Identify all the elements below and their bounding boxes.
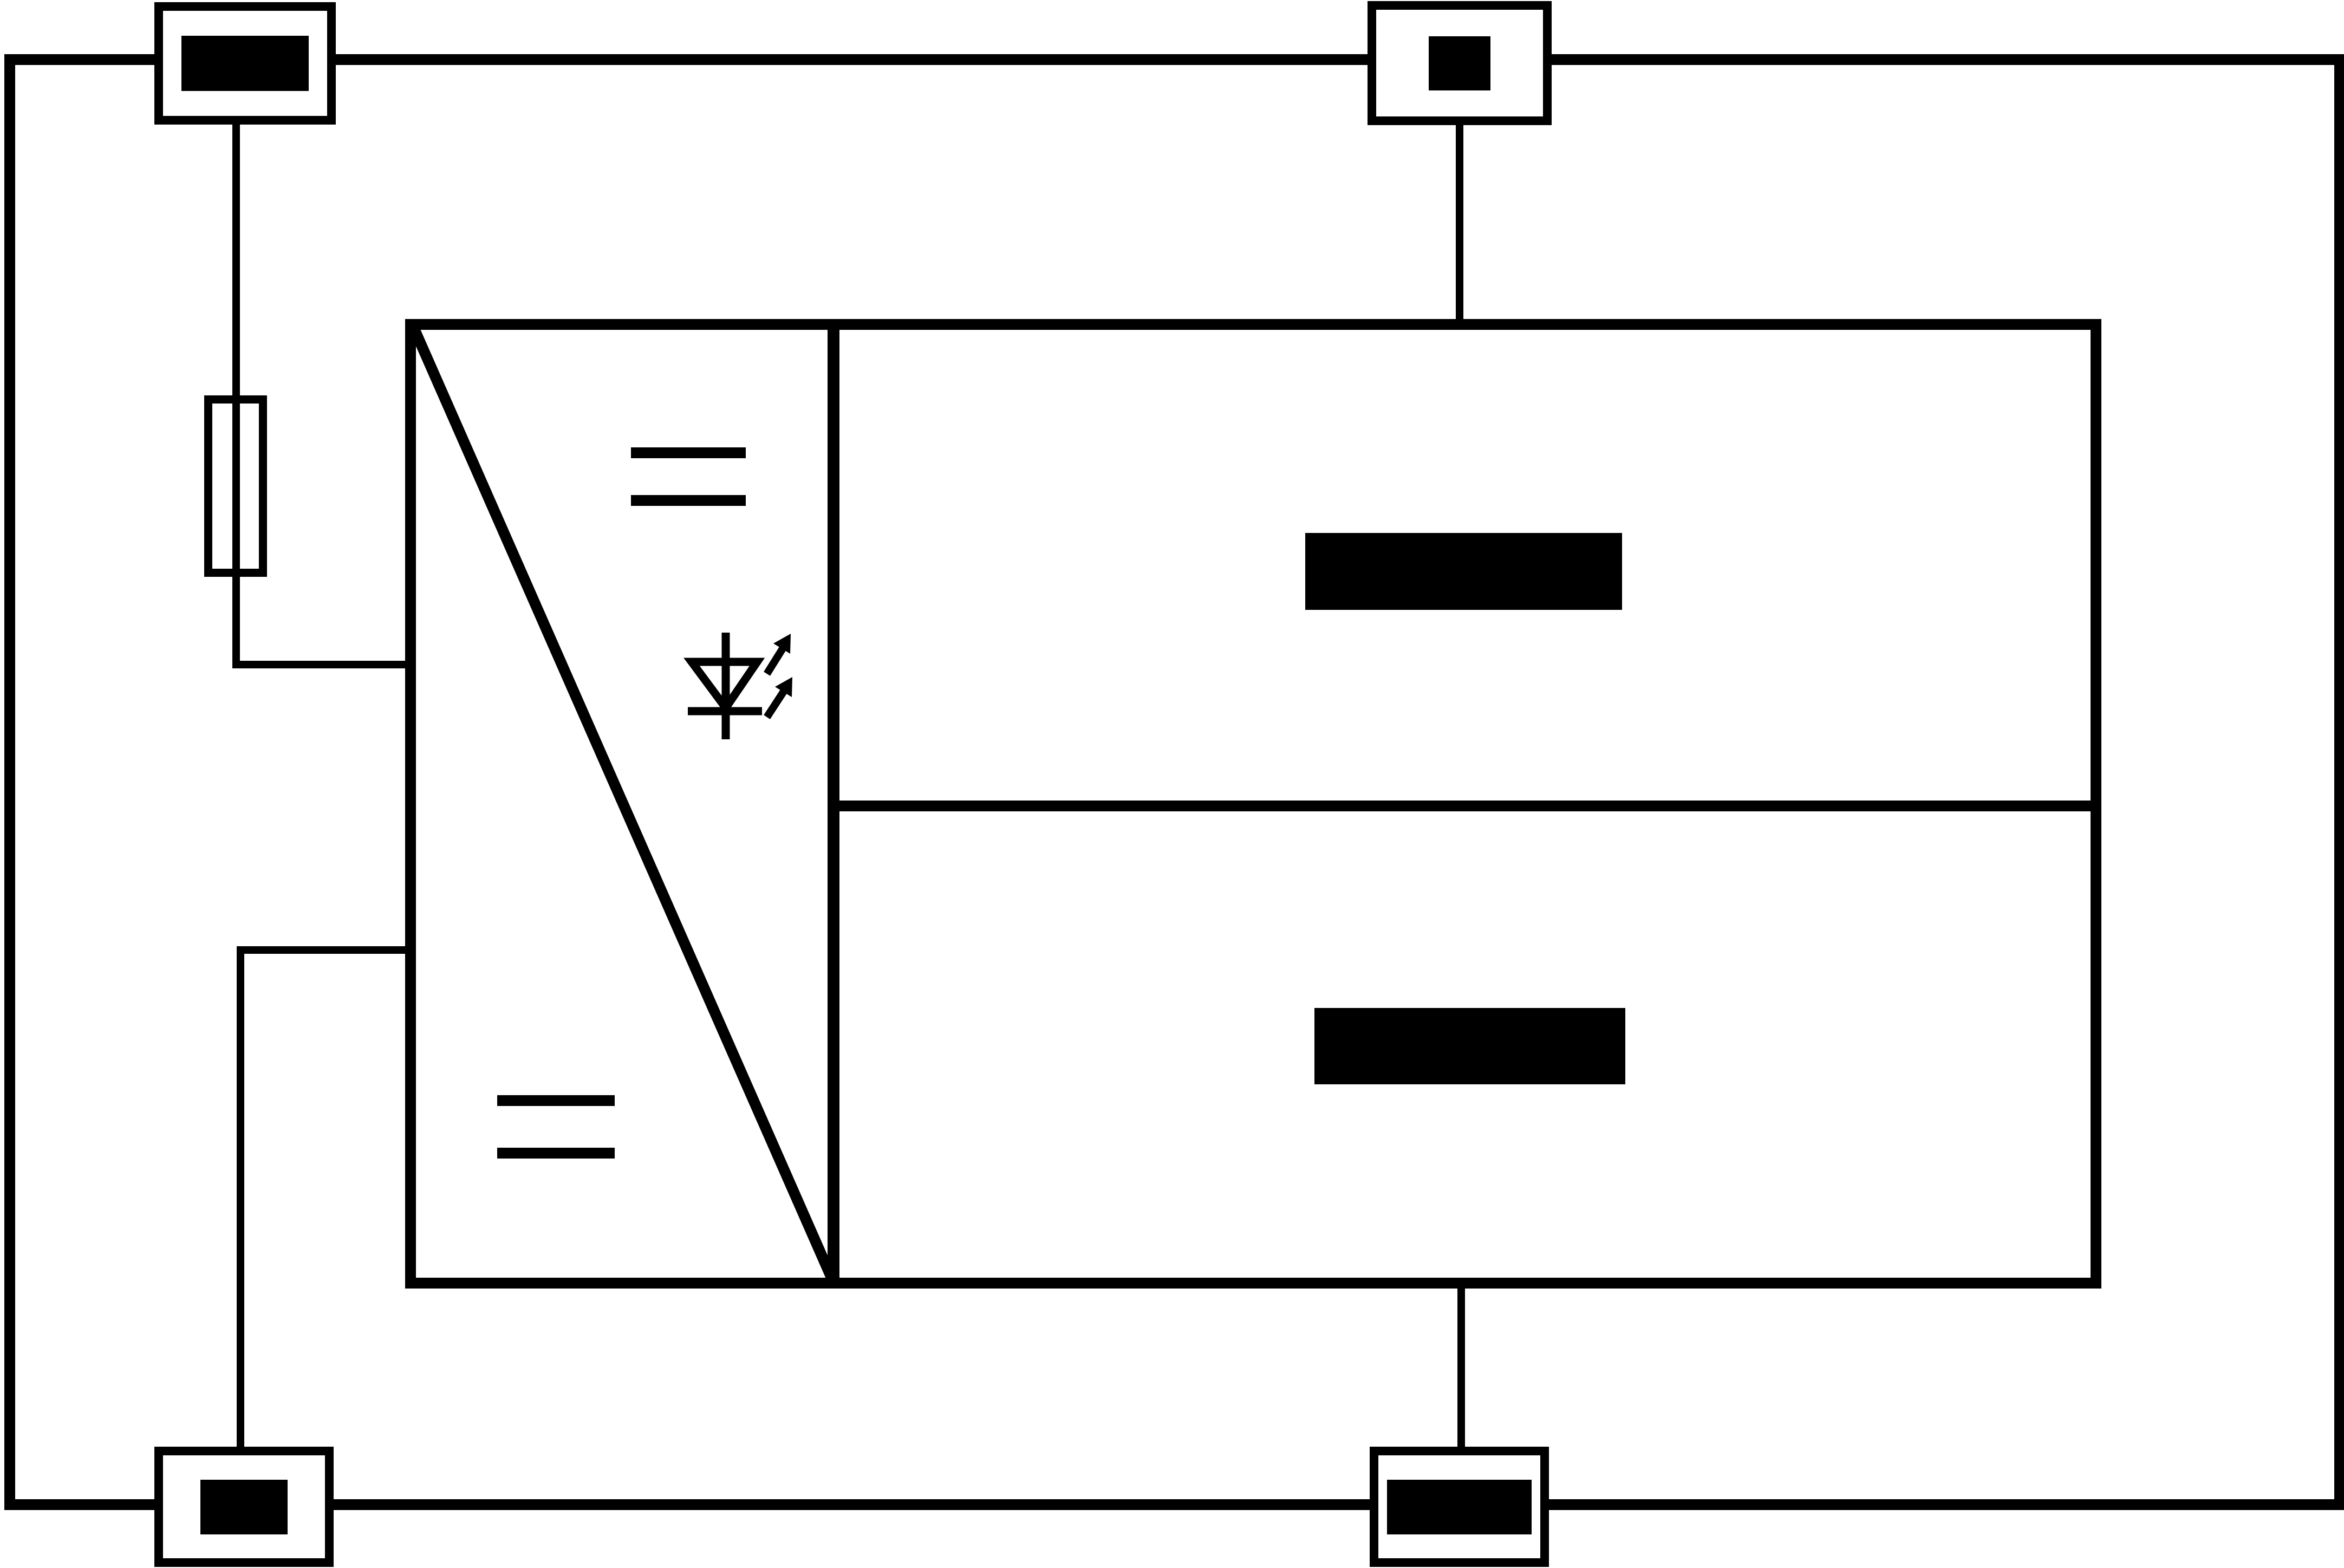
output-blocks-divider xyxy=(839,801,2101,811)
wire-converter-to-bottomleft xyxy=(240,950,409,1449)
redacted-label-terminal-top-center xyxy=(1429,36,1490,90)
converter-section-divider xyxy=(828,319,839,1289)
dc-symbol-upper-bar-1 xyxy=(631,447,746,458)
schematic-canvas xyxy=(0,0,2344,1568)
redacted-label-lower-block xyxy=(1314,1008,1625,1084)
redacted-label-terminal-bottom-center xyxy=(1387,1480,1532,1534)
terminal-top-center xyxy=(1368,1,1552,125)
fuse-symbol xyxy=(204,395,267,577)
dc-symbol-upper-bar-2 xyxy=(631,495,746,506)
terminal-bottom-left xyxy=(154,1447,334,1567)
redacted-label-terminal-top-left xyxy=(181,36,309,91)
redacted-label-terminal-bottom-left xyxy=(200,1480,288,1534)
dc-symbol-lower-bar-2 xyxy=(497,1148,615,1159)
terminal-bottom-center xyxy=(1370,1447,1549,1567)
wire-topleft-to-converter xyxy=(236,122,409,665)
redacted-label-upper-block xyxy=(1305,533,1622,610)
dc-symbol-lower-bar-1 xyxy=(497,1095,615,1106)
terminal-top-left xyxy=(154,2,336,125)
